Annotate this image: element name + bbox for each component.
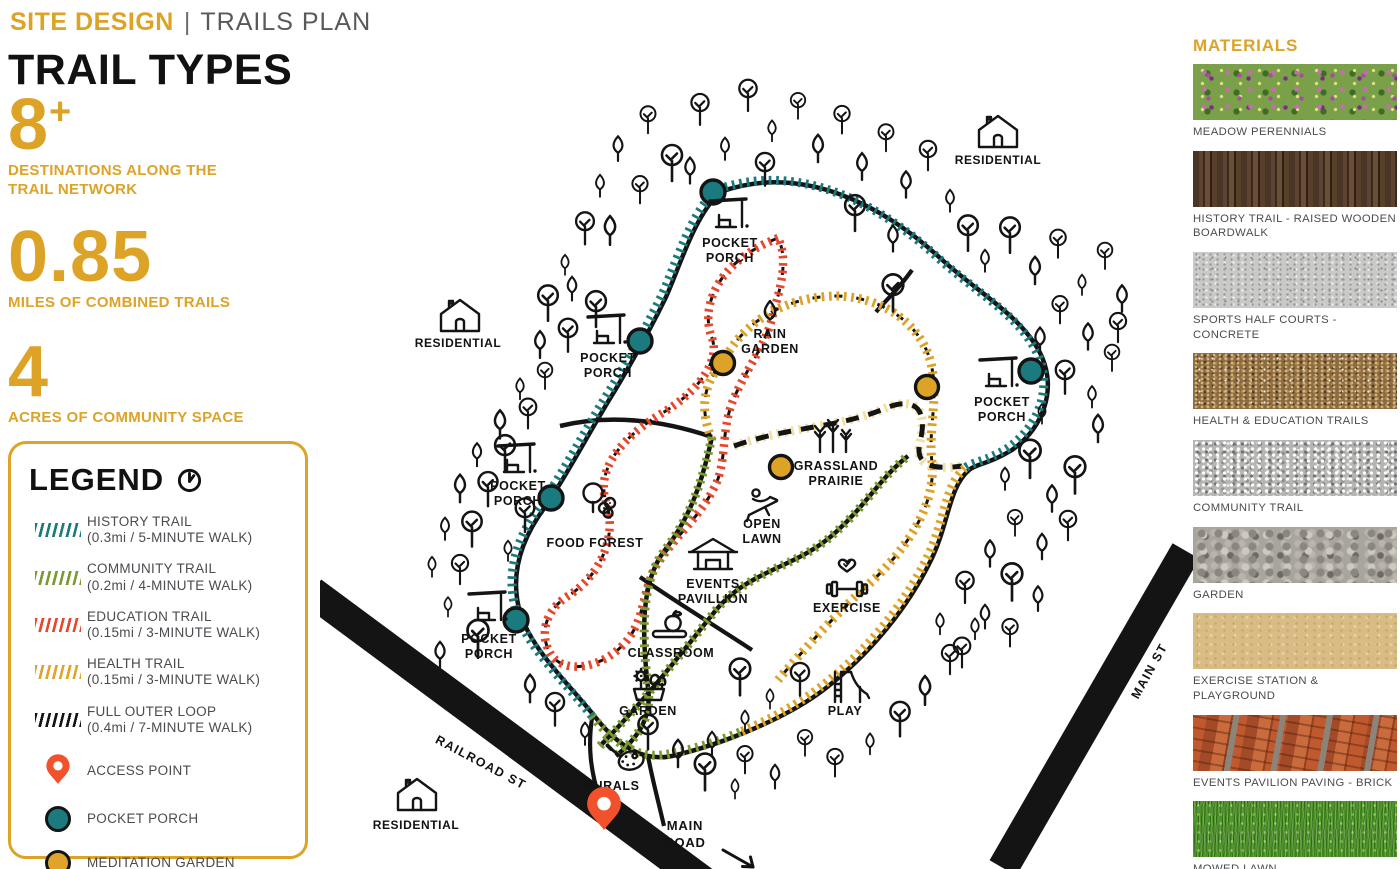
stat-value: 8+ (8, 92, 308, 158)
place-label: OPENLAWN (742, 517, 781, 546)
clock-icon (176, 467, 203, 494)
tree-icon (452, 555, 468, 584)
material-photo-concrete (1193, 252, 1397, 308)
tree-icon (568, 277, 577, 301)
tree-icon (1098, 243, 1113, 269)
tree-icon (1117, 285, 1127, 311)
tree-icon (766, 689, 773, 708)
meditation-garden-marker (712, 352, 735, 375)
tree-icon (1034, 586, 1043, 611)
materials-panel: MATERIALS MEADOW PERENNIALS HISTORY TRAI… (1193, 36, 1397, 869)
poster: POCKETPORCHPOCKETPORCHPOCKETPORCHPOCKETP… (0, 0, 1400, 869)
place-pp-left-upper: POCKETPORCH (580, 315, 636, 380)
place-label: POCKETPORCH (490, 479, 546, 508)
tree-icon (462, 512, 481, 547)
place-label: POCKETPORCH (974, 395, 1030, 424)
tree-icon (1065, 456, 1086, 493)
tree-icon (888, 226, 897, 252)
tree-icon (798, 730, 812, 756)
tree-icon (731, 779, 738, 798)
tree-icon (958, 215, 978, 250)
tree-icon (435, 642, 444, 667)
tree-icon (586, 291, 606, 327)
stat-label: ACRES OF COMMUNITY SPACE (8, 409, 258, 428)
place-label: RESIDENTIAL (373, 818, 460, 832)
tree-icon (1105, 345, 1120, 371)
legend-item-meditation-garden: MEDITATION GARDEN (29, 850, 291, 869)
pavilion-icon (689, 539, 737, 569)
tree-icon (1050, 230, 1066, 258)
dumbbell-icon (827, 560, 867, 596)
material-item: HISTORY TRAIL - RAISED WOODEN BOARDWALK (1193, 151, 1397, 241)
tree-icon (1008, 510, 1022, 536)
place-label: POCKETPORCH (461, 632, 517, 661)
tree-icon (455, 475, 465, 503)
tree-icon (946, 190, 954, 212)
meditation-garden-marker (916, 376, 939, 399)
tree-icon (1083, 323, 1092, 349)
place-label: RESIDENTIAL (415, 336, 502, 350)
legend-title-row: LEGEND (29, 462, 291, 498)
book-apple-icon (653, 611, 686, 637)
tree-icon (525, 675, 535, 703)
material-photo-meadow (1193, 64, 1397, 120)
tree-icon (504, 541, 511, 561)
legend-item-access-point: ACCESS POINT (29, 754, 291, 788)
tree-icon (857, 153, 867, 180)
marker-dot-swatch (45, 850, 71, 869)
tree-icon (473, 443, 481, 466)
tree-icon (1078, 275, 1085, 295)
tree-icon (737, 746, 752, 773)
stat-value: 4 (8, 339, 308, 405)
material-item: MOWED LAWN (1193, 801, 1397, 869)
legend-item-pocket-porch: POCKET PORCH (29, 806, 291, 832)
trail-hatch-swatch (35, 618, 81, 632)
material-label: MOWED LAWN (1193, 862, 1397, 869)
legend-item-health-trail: HEALTH TRAIL(0.15mi / 3-MINUTE WALK) (29, 656, 291, 688)
legend-box: LEGEND HISTORY TRAIL(0.3mi / 5-MINUTE WA… (8, 441, 308, 859)
trail-hatch-swatch (35, 571, 81, 585)
tree-icon (662, 145, 682, 181)
material-photo-gravel-fine (1193, 440, 1397, 496)
tree-icon (1019, 440, 1040, 478)
tree-icon (768, 120, 776, 141)
material-item: EXERCISE STATION & PLAYGROUND (1193, 613, 1397, 703)
marker-dot-swatch (45, 806, 71, 832)
access-point-pin-icon (45, 754, 71, 788)
tree-icon (834, 106, 849, 134)
page-title: TRAIL TYPES (8, 46, 292, 95)
tree-icon (771, 765, 780, 789)
trail-hatch-swatch (35, 713, 81, 727)
tree-icon (956, 572, 973, 603)
material-label: GARDEN (1193, 588, 1397, 603)
place-exercise: EXERCISE (813, 560, 881, 615)
place-label: POCKETPORCH (702, 236, 758, 265)
material-photo-lawn (1193, 801, 1397, 857)
tree-icon (1030, 257, 1040, 284)
header-subtitle: TRAILS PLAN (200, 8, 371, 37)
tree-icon (1060, 511, 1076, 541)
tree-icon (901, 171, 910, 197)
tree-icon (879, 124, 894, 151)
tree-icon (981, 250, 989, 272)
road-label-main-road: MAINROAD (664, 818, 705, 850)
main-road-arrow-icon (723, 850, 753, 867)
porch-icon (588, 315, 627, 344)
trail-community-loop (592, 716, 740, 755)
material-photo-gravel-coarse (1193, 527, 1397, 583)
tree-icon (920, 141, 936, 171)
tree-icon (441, 518, 449, 540)
tree-icon (739, 80, 756, 111)
material-photo-brick (1193, 715, 1397, 771)
trail-hatch-swatch (35, 665, 81, 679)
tree-icon (1088, 386, 1096, 407)
tree-icon (954, 638, 971, 668)
place-residential-sw: RESIDENTIAL (373, 779, 460, 832)
porch-icon (469, 592, 508, 621)
material-label: HISTORY TRAIL - RAISED WOODEN BOARDWALK (1193, 212, 1397, 241)
path-black (648, 756, 664, 826)
stat-2: 4 ACRES OF COMMUNITY SPACE (8, 339, 308, 428)
pocket-porch-marker (504, 608, 528, 632)
tree-icon (730, 659, 750, 696)
stat-label: MILES OF COMBINED TRAILS (8, 294, 258, 313)
house-icon (398, 779, 436, 810)
tree-icon (1110, 313, 1126, 342)
tree-icon (827, 749, 842, 777)
road-main-st (1003, 551, 1186, 868)
stat-value: 0.85 (8, 224, 308, 290)
legend-item-history-trail: HISTORY TRAIL(0.3mi / 5-MINUTE WALK) (29, 514, 291, 546)
left-panel: SITE DESIGN | TRAILS PLAN TRAIL TYPES 8+… (0, 0, 320, 869)
tree-icon (641, 106, 656, 133)
tree-icon (813, 135, 823, 162)
pocket-porch-marker (1019, 359, 1043, 383)
material-photo-wood (1193, 151, 1397, 207)
tree-icon (576, 212, 594, 244)
tree-icon (596, 175, 604, 197)
stats: 8+ DESTINATIONS ALONG THE TRAIL NETWORK0… (8, 92, 308, 442)
trail-history (512, 180, 1044, 716)
tree-icon (535, 331, 545, 358)
legend-item-full-outer-loop: FULL OUTER LOOP(0.4mi / 7-MINUTE WALK) (29, 704, 291, 736)
header-separator: | (184, 8, 191, 37)
tree-icon (791, 663, 809, 696)
tree-icon (605, 216, 615, 245)
trail-health-loop (740, 468, 965, 732)
stat-label: DESTINATIONS ALONG THE TRAIL NETWORK (8, 162, 258, 200)
place-label: EXERCISE (813, 601, 881, 615)
materials-title: MATERIALS (1193, 36, 1397, 56)
place-label: POCKETPORCH (580, 351, 636, 380)
tree-icon (981, 605, 990, 629)
tree-icon (1000, 217, 1020, 252)
legend-item-community-trail: COMMUNITY TRAIL(0.2mi / 4-MINUTE WALK) (29, 561, 291, 593)
tree-icon (691, 94, 708, 125)
tree-icon (520, 399, 537, 429)
place-play: PLAY (828, 672, 869, 718)
trail-connector-dashed (734, 404, 962, 468)
place-label: GRASSLANDPRAIRIE (794, 459, 879, 488)
material-item: COMMUNITY TRAIL (1193, 440, 1397, 516)
tree-icon (985, 540, 994, 566)
tree-icon (971, 618, 979, 639)
tree-icon (791, 93, 805, 119)
tree-icon (546, 693, 564, 726)
material-item: HEALTH & EDUCATION TRAILS (1193, 353, 1397, 429)
tree-icon (444, 597, 451, 616)
house-icon (979, 116, 1017, 147)
tree-icon (1002, 619, 1017, 647)
tree-icon (632, 176, 647, 203)
house-icon (441, 300, 479, 331)
trail-black-dashes (705, 296, 934, 680)
header: SITE DESIGN | TRAILS PLAN (10, 8, 371, 37)
place-pp-top: POCKETPORCH (702, 199, 758, 265)
porch-icon (980, 358, 1019, 387)
place-label: GARDEN (619, 704, 677, 718)
place-label: RAINGARDEN (741, 327, 799, 356)
place-label: PLAY (828, 704, 863, 718)
tree-icon (866, 733, 874, 754)
trail-hatch-swatch (35, 523, 81, 537)
pocket-porch-marker (628, 329, 652, 353)
berry-tree-icon (584, 484, 616, 518)
material-label: EVENTS PAVILION PAVING - BRICK (1193, 776, 1397, 791)
tree-icon (428, 557, 435, 577)
tree-icon (1037, 534, 1046, 559)
header-title: SITE DESIGN (10, 8, 174, 37)
material-label: EXERCISE STATION & PLAYGROUND (1193, 674, 1397, 703)
tree-icon (516, 378, 524, 399)
slide-icon (835, 672, 869, 702)
legend-title: LEGEND (29, 462, 164, 498)
tree-icon (1001, 468, 1009, 490)
material-item: SPORTS HALF COURTS - CONCRETE (1193, 252, 1397, 342)
place-residential-ne: RESIDENTIAL (955, 116, 1042, 167)
tree-icon (1056, 361, 1074, 394)
material-item: MEADOW PERENNIALS (1193, 64, 1397, 140)
material-photo-sand (1193, 613, 1397, 669)
tree-icon (1093, 415, 1103, 442)
tree-icon (559, 319, 577, 352)
tree-icon (936, 613, 944, 634)
material-label: HEALTH & EDUCATION TRAILS (1193, 414, 1397, 429)
legend-item-education-trail: EDUCATION TRAIL(0.15mi / 3-MINUTE WALK) (29, 609, 291, 641)
meditation-garden-marker (770, 456, 793, 479)
place-label: FOOD FOREST (547, 536, 644, 550)
trail-health (705, 296, 934, 680)
tree-icon (538, 363, 553, 389)
place-label: RESIDENTIAL (955, 153, 1042, 167)
tree-icon (561, 255, 568, 275)
tree-icon (1052, 296, 1067, 323)
tree-icon (1002, 563, 1023, 600)
place-events-pavillion: EVENTSPAVILLION (678, 539, 748, 606)
place-label: EVENTSPAVILLION (678, 577, 748, 606)
stat-0: 8+ DESTINATIONS ALONG THE TRAIL NETWORK (8, 92, 308, 200)
place-label: CLASSROOM (628, 646, 715, 660)
tree-icon (890, 702, 909, 737)
tree-icon (538, 285, 558, 320)
material-label: MEADOW PERENNIALS (1193, 125, 1397, 140)
place-residential-nw: RESIDENTIAL (415, 300, 502, 350)
material-item: EVENTS PAVILION PAVING - BRICK (1193, 715, 1397, 791)
tree-icon (614, 136, 623, 161)
material-item: GARDEN (1193, 527, 1397, 603)
tree-icon (721, 138, 729, 160)
tree-icon (920, 676, 930, 705)
tree-icon (581, 723, 589, 745)
tree-icon (685, 158, 694, 184)
tree-icon (883, 274, 904, 311)
material-label: SPORTS HALF COURTS - CONCRETE (1193, 313, 1397, 342)
tree-icon (695, 754, 715, 791)
material-photo-dirt (1193, 353, 1397, 409)
stat-1: 0.85 MILES OF COMBINED TRAILS (8, 224, 308, 313)
tree-icon (1047, 485, 1057, 511)
material-label: COMMUNITY TRAIL (1193, 501, 1397, 516)
place-open-lawn: OPENLAWN (742, 489, 781, 546)
